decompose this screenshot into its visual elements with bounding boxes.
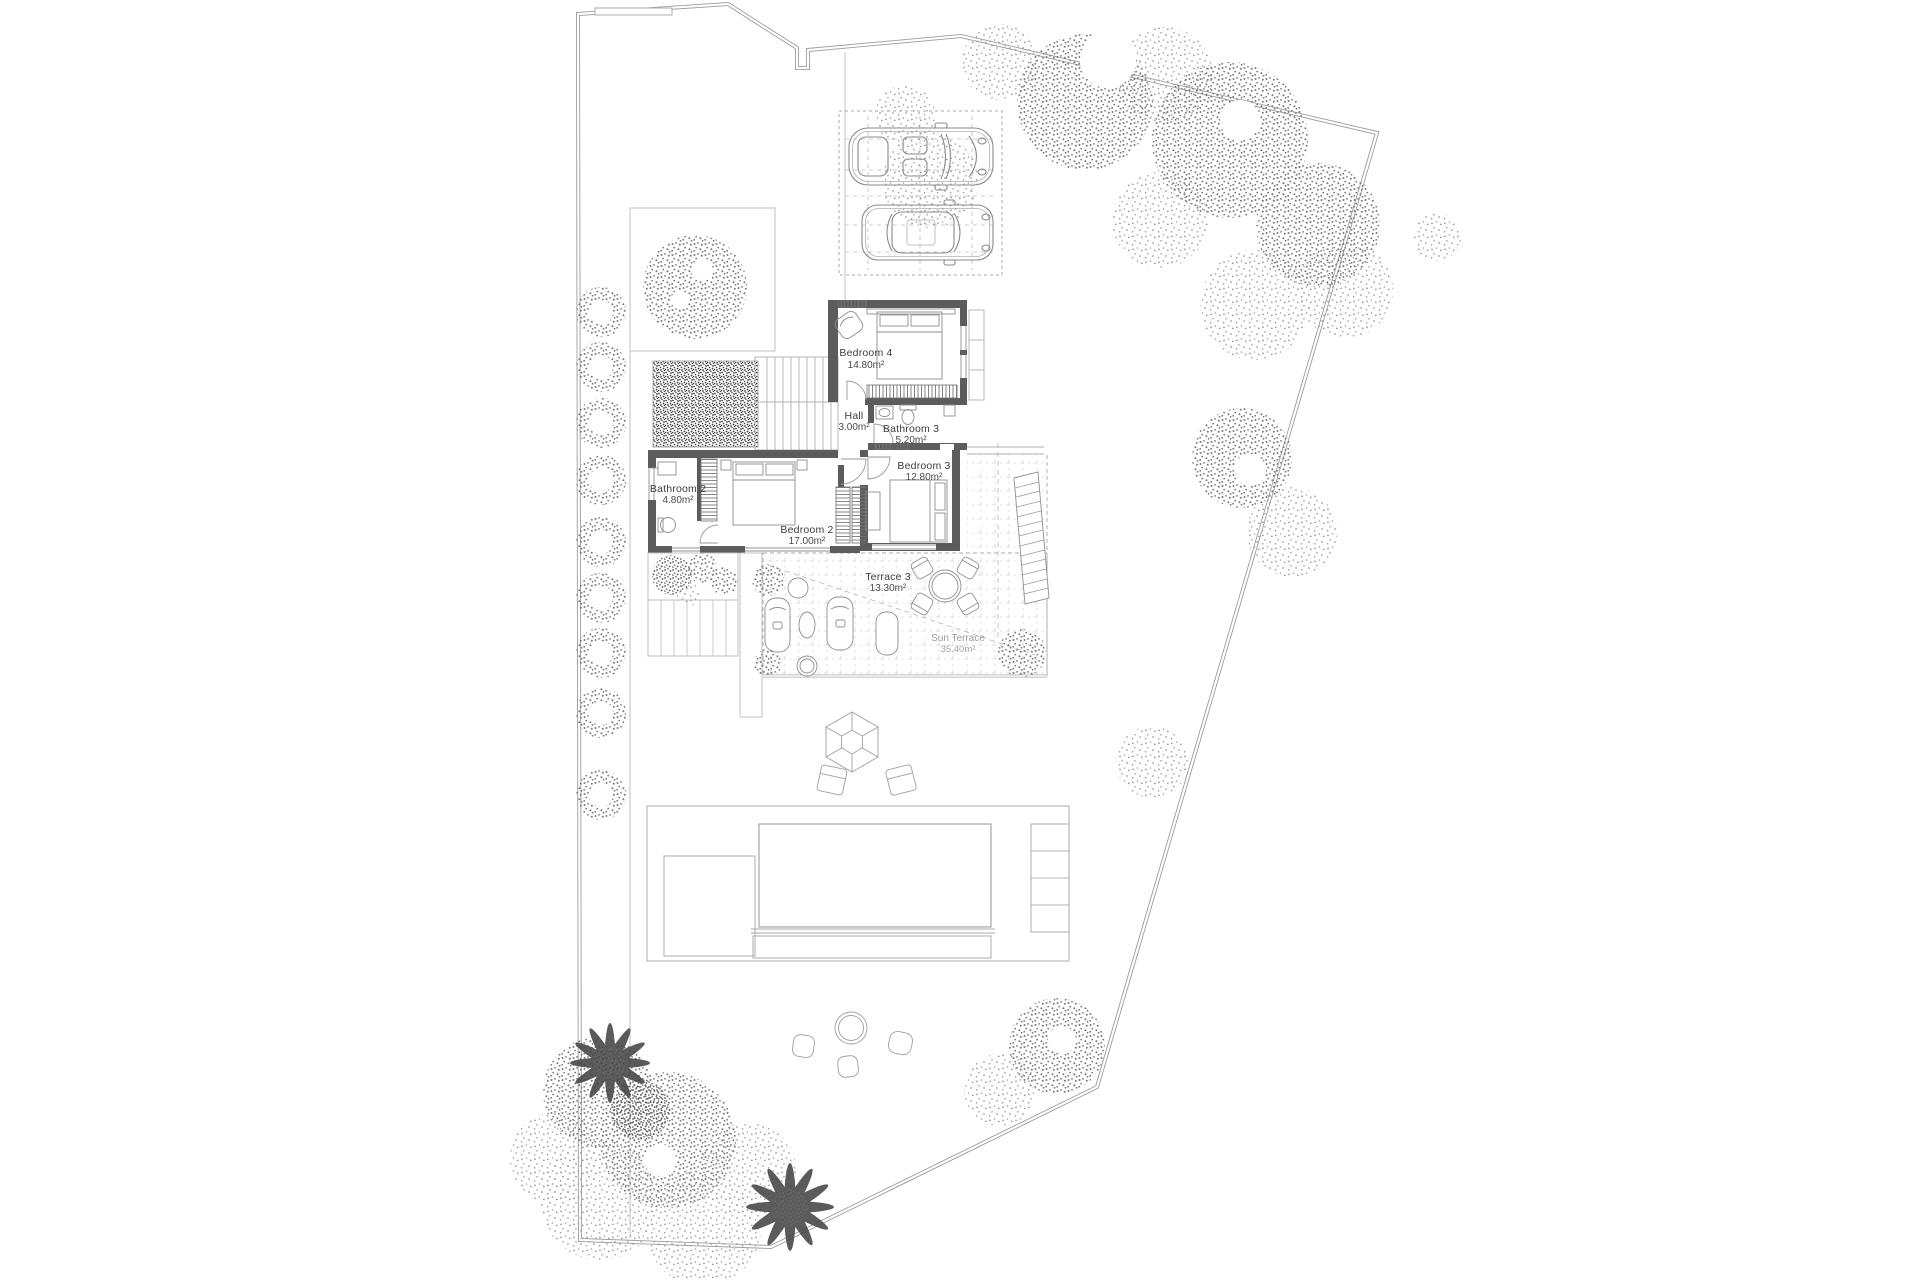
svg-text:Hall: Hall bbox=[845, 410, 864, 422]
terrace-bush-2 bbox=[754, 649, 782, 677]
svg-text:Sun Terrace: Sun Terrace bbox=[931, 633, 985, 644]
pool-side-platform bbox=[664, 856, 755, 956]
pool-area bbox=[647, 806, 1069, 961]
site-plan-drawing: Bedroom 4 14.80m² Hall 3.00m² Bathroom 3… bbox=[0, 0, 1920, 1280]
garden-stones bbox=[792, 1012, 914, 1078]
tree-outside-right bbox=[1413, 213, 1461, 261]
bed3-door-gap bbox=[940, 444, 954, 450]
svg-text:4.80m²: 4.80m² bbox=[662, 495, 694, 506]
svg-text:Bedroom 3: Bedroom 3 bbox=[897, 460, 950, 472]
svg-text:35.40m²: 35.40m² bbox=[941, 644, 976, 655]
pergola-deck bbox=[648, 600, 738, 656]
bed-bedroom4 bbox=[877, 312, 942, 379]
room-label-hall: Hall 3.00m² bbox=[838, 410, 870, 433]
svg-text:Terrace 3: Terrace 3 bbox=[865, 571, 911, 583]
terrace-bush-3 bbox=[998, 629, 1046, 677]
svg-text:Bedroom 2: Bedroom 2 bbox=[780, 524, 833, 536]
room-label-terrace3: Terrace 3 13.30m² bbox=[865, 571, 911, 594]
room-label-bedroom2: Bedroom 2 17.00m² bbox=[780, 524, 833, 547]
room-label-bedroom3: Bedroom 3 12.80m² bbox=[897, 460, 950, 483]
wardrobe-bedroom2-a bbox=[836, 487, 850, 543]
parasol-set bbox=[817, 712, 917, 796]
pool-steps bbox=[1031, 824, 1069, 932]
trees-bottom-left bbox=[510, 1037, 796, 1280]
pool-deck bbox=[647, 806, 1069, 961]
boundary-retaining-wall bbox=[595, 8, 672, 15]
balcony-east bbox=[969, 310, 984, 400]
svg-text:13.30m²: 13.30m² bbox=[870, 583, 907, 594]
sun-lounger-3 bbox=[876, 612, 898, 655]
gravel-roof-square bbox=[653, 361, 758, 447]
stone-3 bbox=[887, 1030, 914, 1056]
bush-mid-right bbox=[1116, 726, 1188, 798]
room-label-bathroom3: Bathroom 3 5.20m² bbox=[883, 423, 939, 446]
door-bedroom4 bbox=[847, 381, 866, 400]
trees-bottom-right bbox=[964, 998, 1105, 1126]
svg-text:Bedroom 4: Bedroom 4 bbox=[839, 347, 892, 359]
bush-hedge-row bbox=[576, 287, 626, 820]
bed-bedroom2 bbox=[721, 460, 807, 525]
svg-text:17.00m²: 17.00m² bbox=[789, 536, 826, 547]
garden-chair-1 bbox=[817, 765, 848, 796]
svg-text:14.80m²: 14.80m² bbox=[848, 360, 885, 371]
planter-bushes bbox=[652, 553, 738, 606]
wardrobe-bedroom2-b bbox=[852, 487, 866, 543]
exterior-stair-west bbox=[755, 357, 838, 450]
door-bedroom3 bbox=[868, 457, 890, 479]
sun-lounger-2 bbox=[827, 597, 853, 650]
stone-1 bbox=[792, 1034, 816, 1059]
bathroom3-fixtures bbox=[876, 405, 955, 425]
swimming-pool bbox=[759, 824, 991, 927]
tree-nw-bed bbox=[643, 235, 747, 339]
entry-vent bbox=[838, 301, 866, 307]
trees-top-cluster bbox=[875, 24, 1393, 360]
side-table bbox=[799, 612, 815, 638]
svg-text:5.20m²: 5.20m² bbox=[895, 435, 927, 446]
svg-text:Bathroom 3: Bathroom 3 bbox=[883, 423, 939, 435]
garden-chair-2 bbox=[885, 764, 917, 796]
svg-text:Bathroom 2: Bathroom 2 bbox=[650, 483, 706, 495]
sun-lounger-1 bbox=[765, 598, 790, 652]
bed-bedroom3 bbox=[866, 480, 947, 542]
pool-bench bbox=[753, 936, 991, 958]
svg-text:12.80m²: 12.80m² bbox=[906, 472, 943, 483]
svg-text:3.00m²: 3.00m² bbox=[838, 422, 870, 433]
door-bedroom2 bbox=[841, 459, 866, 484]
bath3-window bbox=[875, 444, 893, 449]
planter-pot-1 bbox=[788, 578, 808, 598]
wardrobe-bedroom4 bbox=[867, 385, 957, 398]
room-label-bedroom4: Bedroom 4 14.80m² bbox=[839, 347, 892, 371]
terrace-bush-1 bbox=[752, 564, 784, 596]
stone-2 bbox=[837, 1055, 859, 1078]
trees-right-mid bbox=[1192, 408, 1337, 577]
site-plan: Bedroom 4 14.80m² Hall 3.00m² Bathroom 3… bbox=[0, 0, 1920, 1280]
door-bathroom2 bbox=[700, 525, 718, 543]
